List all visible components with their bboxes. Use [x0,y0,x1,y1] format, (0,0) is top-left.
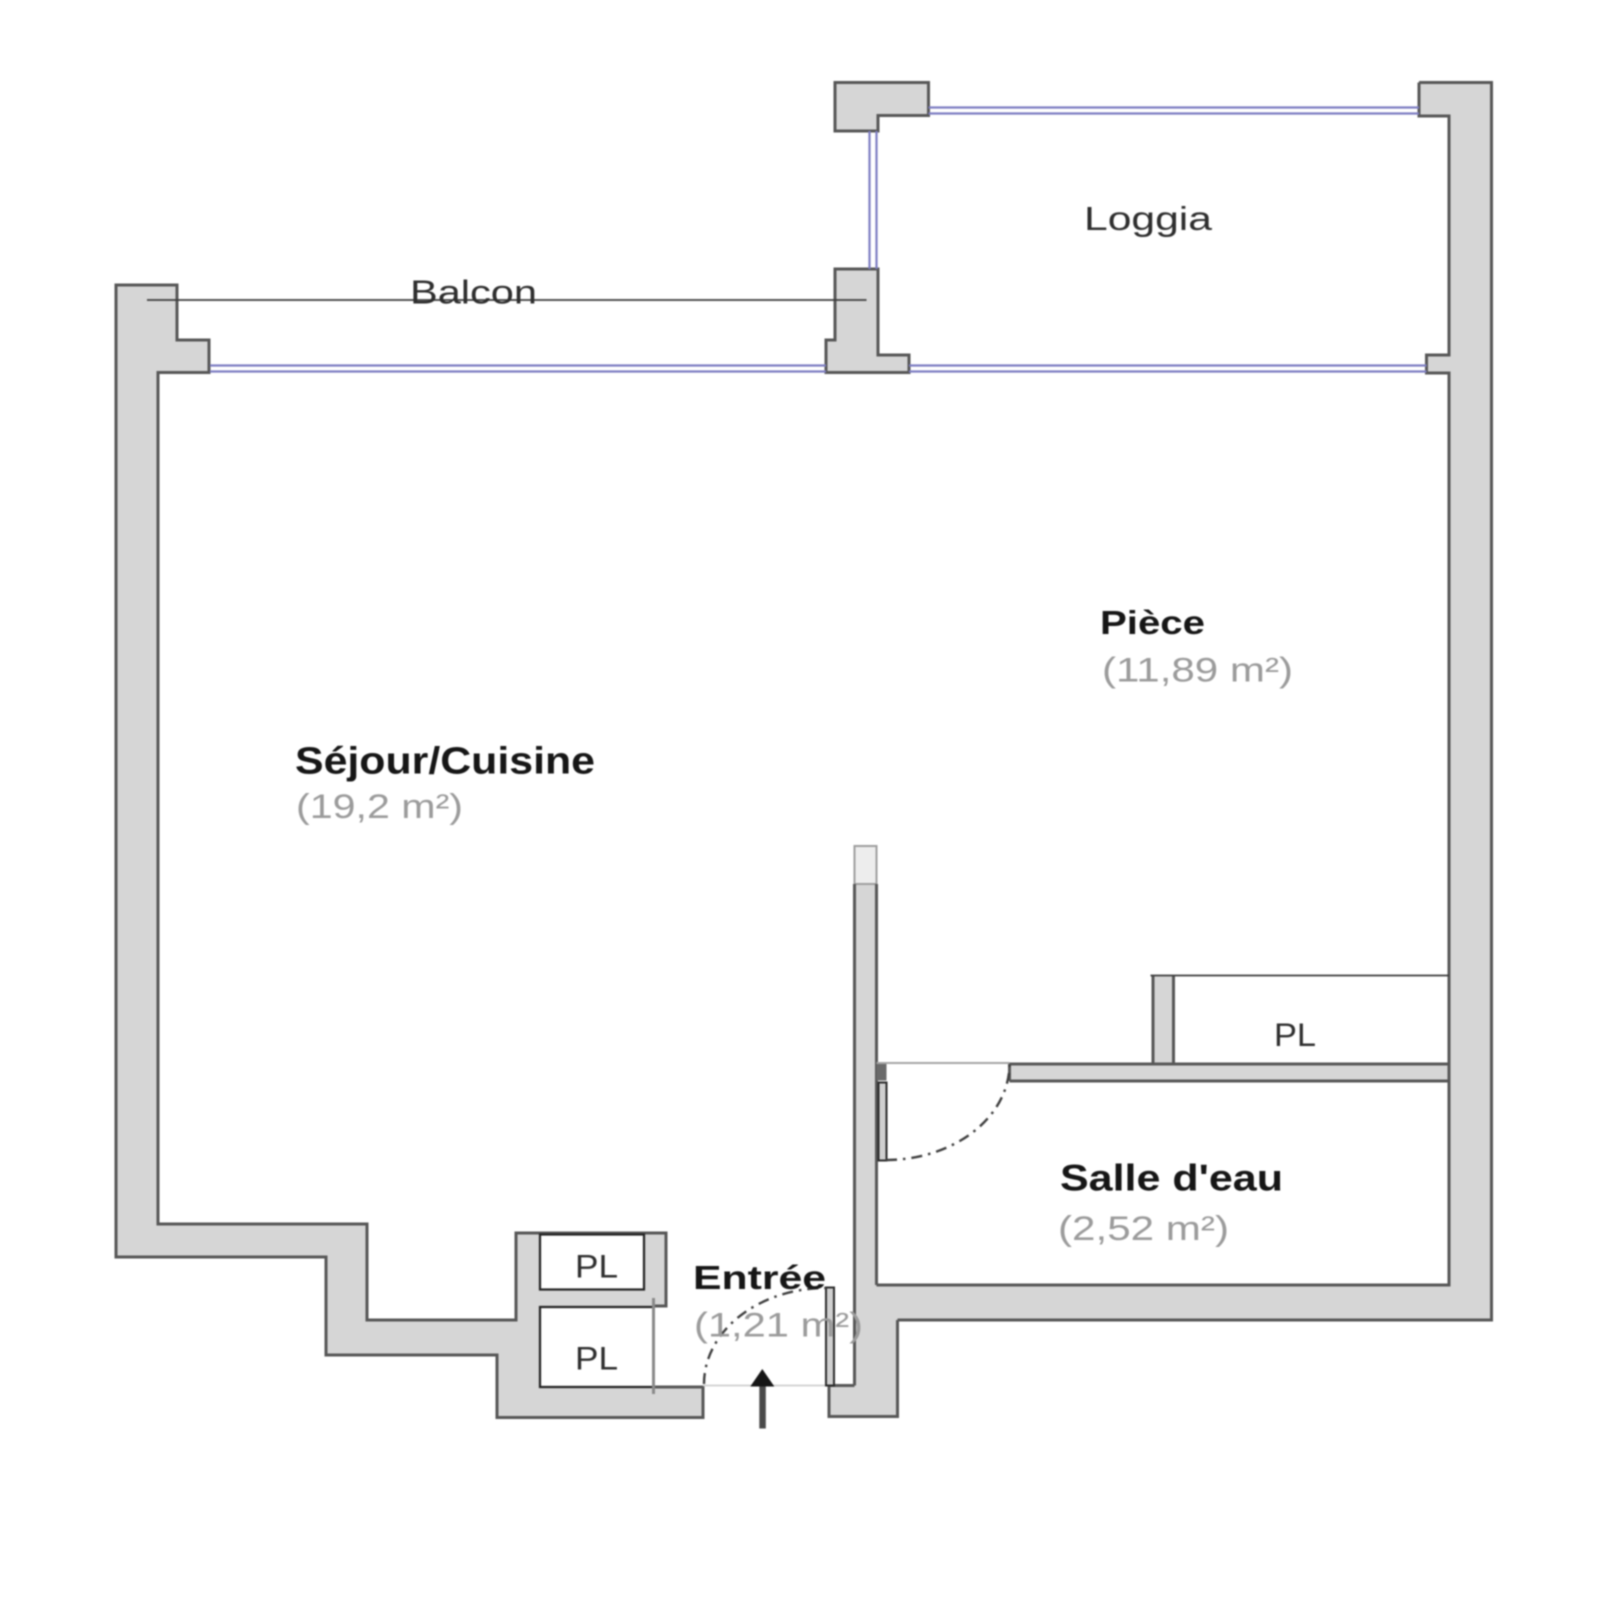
svg-text:PL: PL [1274,1017,1316,1053]
svg-text:(2,52 m²): (2,52 m²) [1058,1210,1229,1248]
svg-text:Loggia: Loggia [1084,200,1213,237]
svg-text:Entrée: Entrée [693,1259,826,1296]
svg-text:(1,21 m²): (1,21 m²) [694,1307,863,1345]
svg-text:PL: PL [575,1341,618,1377]
svg-text:(11,89 m²): (11,89 m²) [1102,652,1293,690]
svg-text:Séjour/Cuisine: Séjour/Cuisine [295,741,595,783]
svg-text:Salle d'eau: Salle d'eau [1060,1158,1283,1199]
svg-text:PL: PL [575,1249,618,1285]
svg-text:(19,2 m²): (19,2 m²) [296,788,463,826]
svg-text:Balcon: Balcon [410,274,537,311]
svg-text:Pièce: Pièce [1100,604,1205,641]
